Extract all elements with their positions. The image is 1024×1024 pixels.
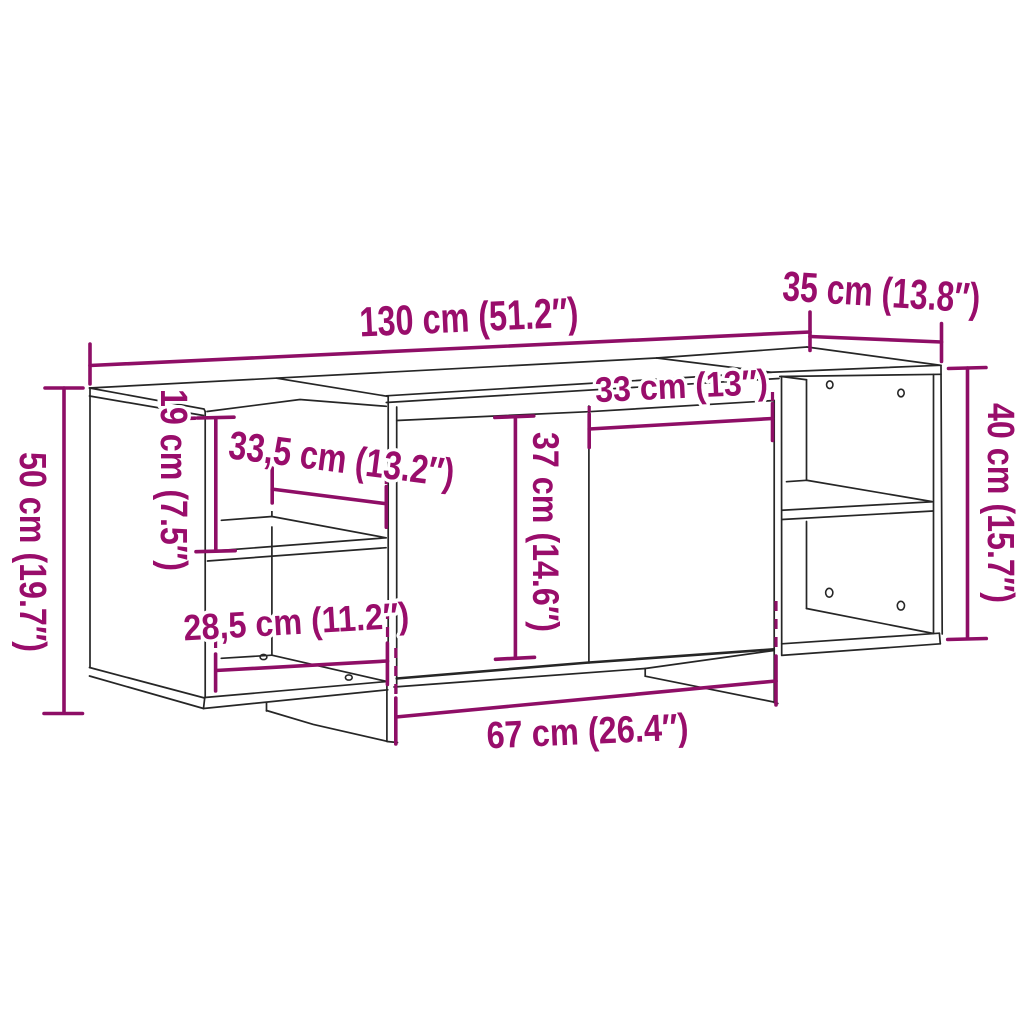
svg-text:37 cm (14.6″): 37 cm (14.6″)	[525, 432, 566, 632]
svg-text:40 cm (15.7″): 40 cm (15.7″)	[979, 403, 1021, 603]
svg-text:28,5 cm (11.2″): 28,5 cm (11.2″)	[182, 595, 410, 649]
svg-text:50 cm (19.7″): 50 cm (19.7″)	[11, 452, 53, 652]
svg-text:130 cm (51.2″): 130 cm (51.2″)	[358, 289, 579, 346]
svg-text:67 cm (26.4″): 67 cm (26.4″)	[486, 707, 690, 758]
svg-text:19 cm (7.5″): 19 cm (7.5″)	[152, 389, 194, 571]
svg-text:33,5 cm (13.2″): 33,5 cm (13.2″)	[226, 423, 457, 495]
svg-text:33 cm (13″): 33 cm (13″)	[594, 362, 769, 410]
